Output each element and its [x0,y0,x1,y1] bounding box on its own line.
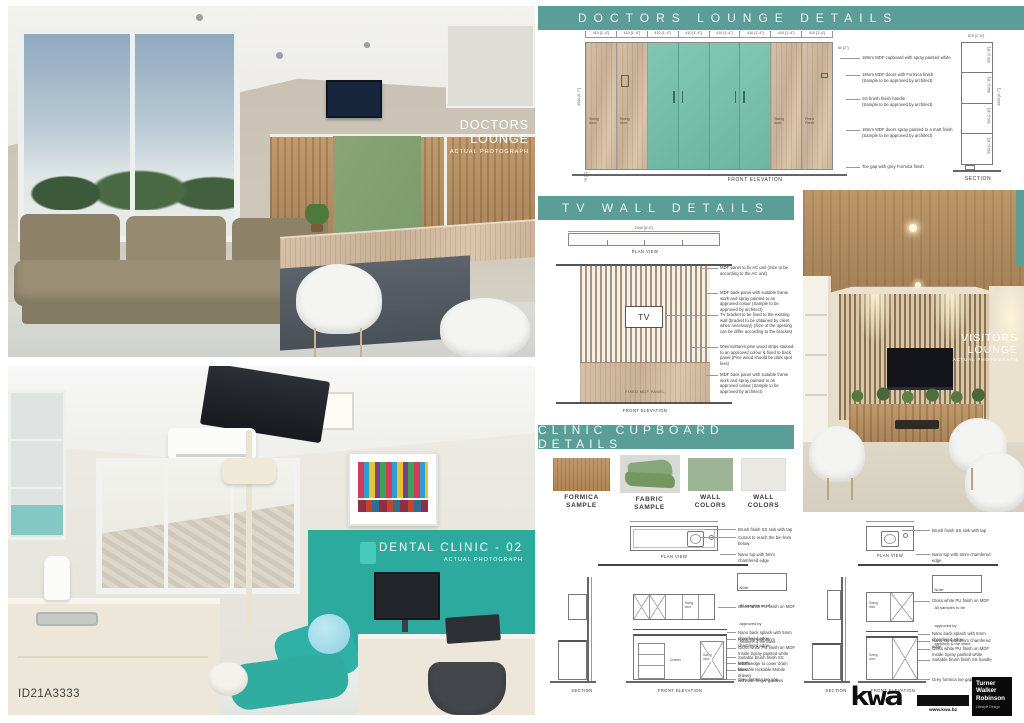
drawer-stack [638,643,665,679]
leader-line [918,641,930,642]
clinic-cupboard-header: CLINIC CUPBOARD DETAILS [538,425,794,449]
photo-title-block: DOCTORS LOUNGE ACTUAL PHOTOGRAPH [450,118,529,155]
dim-label: 410 [1'-4"] [585,31,616,37]
annotation: Nano top with 5mm chamfered edge [932,552,992,563]
sofa-back-cushion [20,214,120,266]
plan-tick [644,240,645,245]
upper-cabinets-elevation-right: Swing door [866,592,914,622]
cupboard-door: Fixed Panel [802,43,832,169]
cabinet-door: Swing door [700,641,724,679]
door-label: Swing door [620,117,630,126]
photo-subtitle: ACTUAL PHOTOGRAPH [379,557,523,563]
annotation: 18mm MDF cupboard with spray painted whi… [862,55,958,61]
leader-line [846,167,860,168]
headrest-cap [308,614,350,654]
section-title: TV WALL DETAILS [562,201,770,215]
cupboard-door [710,43,741,169]
dim-line [568,231,720,232]
plan-tick [607,240,608,245]
leader-line [727,632,736,633]
plan-tick [682,240,683,245]
annotation: 18mm MDF doors spray painted to a matt f… [862,127,958,138]
shelf [805,354,827,356]
door-label: Swing door [869,602,878,610]
section-caption: SECTION [953,176,1003,182]
annotation: SS brush finish handle (Sample to be app… [862,96,958,107]
ceiling-light [196,14,203,21]
section-floor-line [804,681,850,683]
cabinet-door: Swing door [867,593,891,621]
cupboard-door [648,43,679,169]
wood-ceiling [803,190,1024,300]
cabinet-door [650,595,666,619]
company-tagline: Lifestyle Design [976,705,1008,709]
cabinet-door [634,595,650,619]
leader-line [918,649,930,650]
section-upper-cabinet [827,590,841,620]
section-title: CLINIC CUPBOARD DETAILS [538,423,794,451]
annotation: Gloss white PU finish on MDF [738,604,796,610]
photo-title: LOUNGE [450,132,529,146]
cabinet-drawer-line [18,656,208,658]
monitor-stand [402,620,408,632]
drawer [639,655,664,666]
shelf-unit [803,276,831,446]
leader-line [918,679,930,680]
annotation: MDF panel to fix AC unit (Size to be acc… [720,265,794,276]
tv-wall-plan [568,233,720,246]
section-height-dim: 2000 [6'-7"] [997,88,1001,106]
chair [809,426,865,482]
wall-color-swatch [741,458,786,491]
leader-line [727,663,736,664]
panel-label: FIXED MDF PANEL [595,390,695,394]
chair [440,298,530,357]
floor-line [572,174,847,176]
leader-line [727,639,736,640]
elevation-height-dim: 2000 [6'-7"] [577,88,581,106]
chair-leg [360,328,362,357]
section-upper-cabinet [568,594,587,620]
door-handle [743,91,745,103]
leader-line [727,648,736,649]
company-name: Turner [976,680,1008,687]
backsplash-line [866,631,918,632]
plan-dim: 2440 [8'-0"] [600,226,688,230]
section-caption: SECTION [552,688,612,693]
leader-line [666,315,718,316]
cupboard-door [740,43,771,169]
dental-clinic-photo: DENTAL CLINIC - 02 ACTUAL PHOTOGRAPH ID2… [8,366,535,715]
cupboard-door: Swing door [617,43,648,169]
chair-leg [314,328,316,357]
divider-rule [598,564,748,566]
cabinet-door [893,638,918,679]
kwa-logo-text: kwa [850,682,901,712]
tap-plan [903,533,908,538]
dim-label: 410 [1'-4"] [801,31,833,37]
annotation: Brush finish SS sink with tap [738,527,796,533]
cabinet-door [666,595,682,619]
section-cell-dim: 500 [1'-8"] [987,108,991,124]
leader-line [706,375,718,376]
leader-line [918,660,930,661]
tv [887,348,953,390]
dim-label: 410 [1'-4"] [770,31,801,37]
window [18,28,240,242]
cctv-tv [326,80,382,118]
window-trees [24,160,234,216]
annotation: TV bracket to be fixed to the existing w… [720,312,794,334]
divider-rule [858,564,998,566]
sink [36,612,98,626]
plan-caption: PLAN VIEW [864,553,916,558]
photo-subtitle: ACTUAL PHOTOGRAPH [450,149,529,155]
floor-line [626,681,734,683]
chair-leg [971,468,973,490]
leader-line [727,657,736,658]
window-mullion [130,34,135,236]
cupboard-front-elevation: Swing door Swing door Swing door Fixed P… [585,42,833,170]
annotation: Cutout to reach the bin from below [738,535,796,546]
annotation: Gloss white PU finish on MDF [932,598,992,604]
door-handle [821,73,828,78]
toe-dim: 75 [3"] [584,172,588,182]
elevation-dim-row: 410 [1'-4"] 410 [1'-4"] 410 [1'-4"] 410 … [585,31,833,38]
door-label: Fixed Panel [805,117,814,126]
door-label: Swing door [685,602,694,610]
tv-outline: TV [625,306,663,328]
presentation-board: DOCTORS LOUNGE ACTUAL PHOTOGRAPH [0,0,1024,723]
visitors-lounge-photo: VISITORS LOUNGE ACTUAL PHOTOGRAPH [803,190,1024,512]
dim-label: 410 [1'-4"] [709,31,740,37]
door-label: Swing door [589,117,599,126]
ceiling-light [364,42,370,48]
company-name: Robinson [976,695,1008,702]
cabinet-door [699,595,714,619]
backsplash-line [633,629,727,630]
door-label: Swing door [774,117,784,126]
cabinet-door: Swing door [683,595,699,619]
sample-label: FORMICA SAMPLE [545,494,618,511]
section-lower-cabinet [812,643,841,680]
dim-label: 410 [1'-4"] [739,31,770,37]
cupboard-door [679,43,710,169]
elevation-caption: FRONT ELEVATION [605,408,685,413]
chair-leg [851,478,853,500]
wall-cabinet-top [446,24,535,108]
leader-line [690,347,718,348]
section-wall-line [845,577,846,682]
photo-subtitle: ACTUAL PHOTOGRAPH [953,357,1018,362]
section-plinth [965,165,975,170]
window-mullion [164,464,168,588]
photo-title-block: DENTAL CLINIC - 02 ACTUAL PHOTOGRAPH [379,542,523,564]
drawer [639,644,664,655]
chair [296,264,382,334]
photo-title-block: VISITORS LOUNGE ACTUAL PHOTOGRAPH [953,332,1018,362]
door-handle [682,91,684,103]
laptop [445,614,501,644]
kwa-website: www.kwa.bz [917,708,969,713]
photo-title: LOUNGE [953,344,1018,356]
leader-line [700,537,736,538]
glass-cabinet [8,390,66,540]
photo-title: VISITORS [953,332,1018,344]
section-top-dim: 875 [1'-9"] [956,34,996,38]
section-cell-dim: 500 [1'-8"] [987,77,991,93]
leader-line [902,530,930,531]
annotation: MDF back panel with suitable frame work … [720,372,794,394]
section-lower-cabinet [558,640,587,680]
note-box: Note: All samples to be approved by arch… [737,573,787,591]
cabinet-slot [895,420,939,429]
tv-label: TV [638,312,650,322]
door-label: Swing door [869,654,878,662]
annotation: Toe gap with grey Formica finish [862,164,958,170]
company-logo-box: Turner Walker Robinson Lifestyle Design [972,677,1012,716]
ac-vent [176,454,248,457]
window-roof-view [102,504,294,588]
plan-caption: PLAN VIEW [648,554,700,559]
section-wall-line [841,577,843,682]
section-cell-dim: 500 [1'-8"] [987,138,991,154]
leader-line [840,58,860,59]
elevation-caption: FRONT ELEVATION [700,177,810,183]
annotation: MDF back panel with suitable frame work … [720,290,794,312]
cabinet-door [891,593,914,621]
plant-pot [311,224,323,232]
gap-dim: 50 [2"] [838,46,858,50]
section-floor-line [550,681,596,683]
dental-light-head [222,458,276,484]
cupboard-section: 500 [1'-8"] 500 [1'-8"] 500 [1'-8"] 500 … [961,42,993,165]
plants-row [843,386,987,406]
ceiling-light [909,224,917,232]
artwork [358,462,428,498]
door-handle [735,91,737,103]
dim-label: 410 [1'-4"] [616,31,647,37]
fabric-sample-photo [620,455,680,493]
leader-line [700,268,718,269]
annotation: Grey formica toe gap [738,677,796,683]
glass-shelf [11,439,63,441]
shelf [805,394,827,396]
wall-spotlight [855,294,895,344]
front-elevation-caption: FRONT ELEVATION [645,688,715,693]
section-wall-line [587,577,589,682]
annotation: Brush finish SS sink with tap [932,528,992,534]
leader-line [704,529,736,530]
artwork [358,500,428,512]
monitor [374,572,440,620]
cupboard-door: Swing door [771,43,802,169]
lower-cabinets-elevation-right: Swing door [866,636,918,680]
leader-line [720,554,736,555]
formica-sample-swatch [553,458,610,491]
chair [965,452,1024,512]
doctors-details-header: DOCTORS LOUNGE DETAILS [538,6,1024,30]
photo-id-label: ID21A3333 [18,688,80,700]
company-name: Walker [976,687,1008,694]
dim-label: 410 [1'-4"] [647,31,678,37]
plan-caption: PLAN VIEW [615,249,675,254]
leader-line [918,634,930,635]
cupboard-door: Swing door [586,43,617,169]
sofa-back-cushion [126,216,226,266]
wall-color-swatch [688,458,733,491]
leader-line [916,554,930,555]
cabinet-door: Swing door [867,638,893,679]
door-handle [621,75,629,87]
annotation: 50mmx25mm pine wood strips stained to an… [720,344,794,366]
chair-leg [827,478,829,500]
leader-line [718,607,736,608]
door-label: Swing door [703,654,712,662]
sink-bowl [884,534,896,544]
leader-line [846,99,860,100]
door-handle [673,91,675,103]
dim-label: 410 [1'-4"] [678,31,709,37]
photo-title: DENTAL CLINIC - 02 [379,542,523,555]
glass-tint [11,505,63,535]
annotation: Nano top with 5mm chamfered edge [738,552,796,563]
leader-line [846,75,860,76]
kwa-logo-bar [917,695,969,706]
section-cell-dim: 500 [1'-8"] [987,47,991,63]
ceiling-light [276,52,283,59]
leader-line [914,601,930,602]
dim-line [866,521,914,522]
section-floor-line [953,170,1001,172]
fixed-mdf-panel [580,362,710,402]
leader-line [727,670,736,671]
photo-title: DOCTORS [450,118,529,132]
leader-line [706,293,718,294]
upper-cabinets-elevation-left: Swing door [633,594,715,620]
annotation: Gloss white PU finish on MDF Inside Spra… [932,646,994,657]
section-title: DOCTORS LOUNGE DETAILS [578,11,898,25]
glass-shelf [11,487,63,489]
towel [360,542,376,564]
ground-line [556,402,732,404]
teal-edge-strip [1016,190,1024,266]
note-box: Note: All samples to be approved by arch… [932,575,982,593]
sink-bowl [690,534,701,544]
spittoon [208,662,248,696]
drawer-label: Drawer [670,658,681,662]
annotation: 18mm MDF doors with Formica finish (Samp… [862,72,958,83]
lower-cabinets-elevation-left: Drawer Swing door [633,634,727,680]
section-wall-line [591,577,592,682]
dim-line [630,521,718,522]
office-chair [428,662,506,715]
shelf [805,314,827,316]
artwork-frame [348,452,438,526]
leader-line [846,130,860,131]
doctors-lounge-photo: DOCTORS LOUNGE ACTUAL PHOTOGRAPH [8,6,535,357]
fabric-fold [625,472,676,489]
tv-wall-header: TV WALL DETAILS [538,196,794,220]
leader-line [727,679,736,680]
annotation: Suitable brush finish SS handle [932,657,994,663]
water-purifier [44,556,70,600]
ceiling-light [915,282,921,288]
sample-label: WALL COLORS [727,494,800,511]
